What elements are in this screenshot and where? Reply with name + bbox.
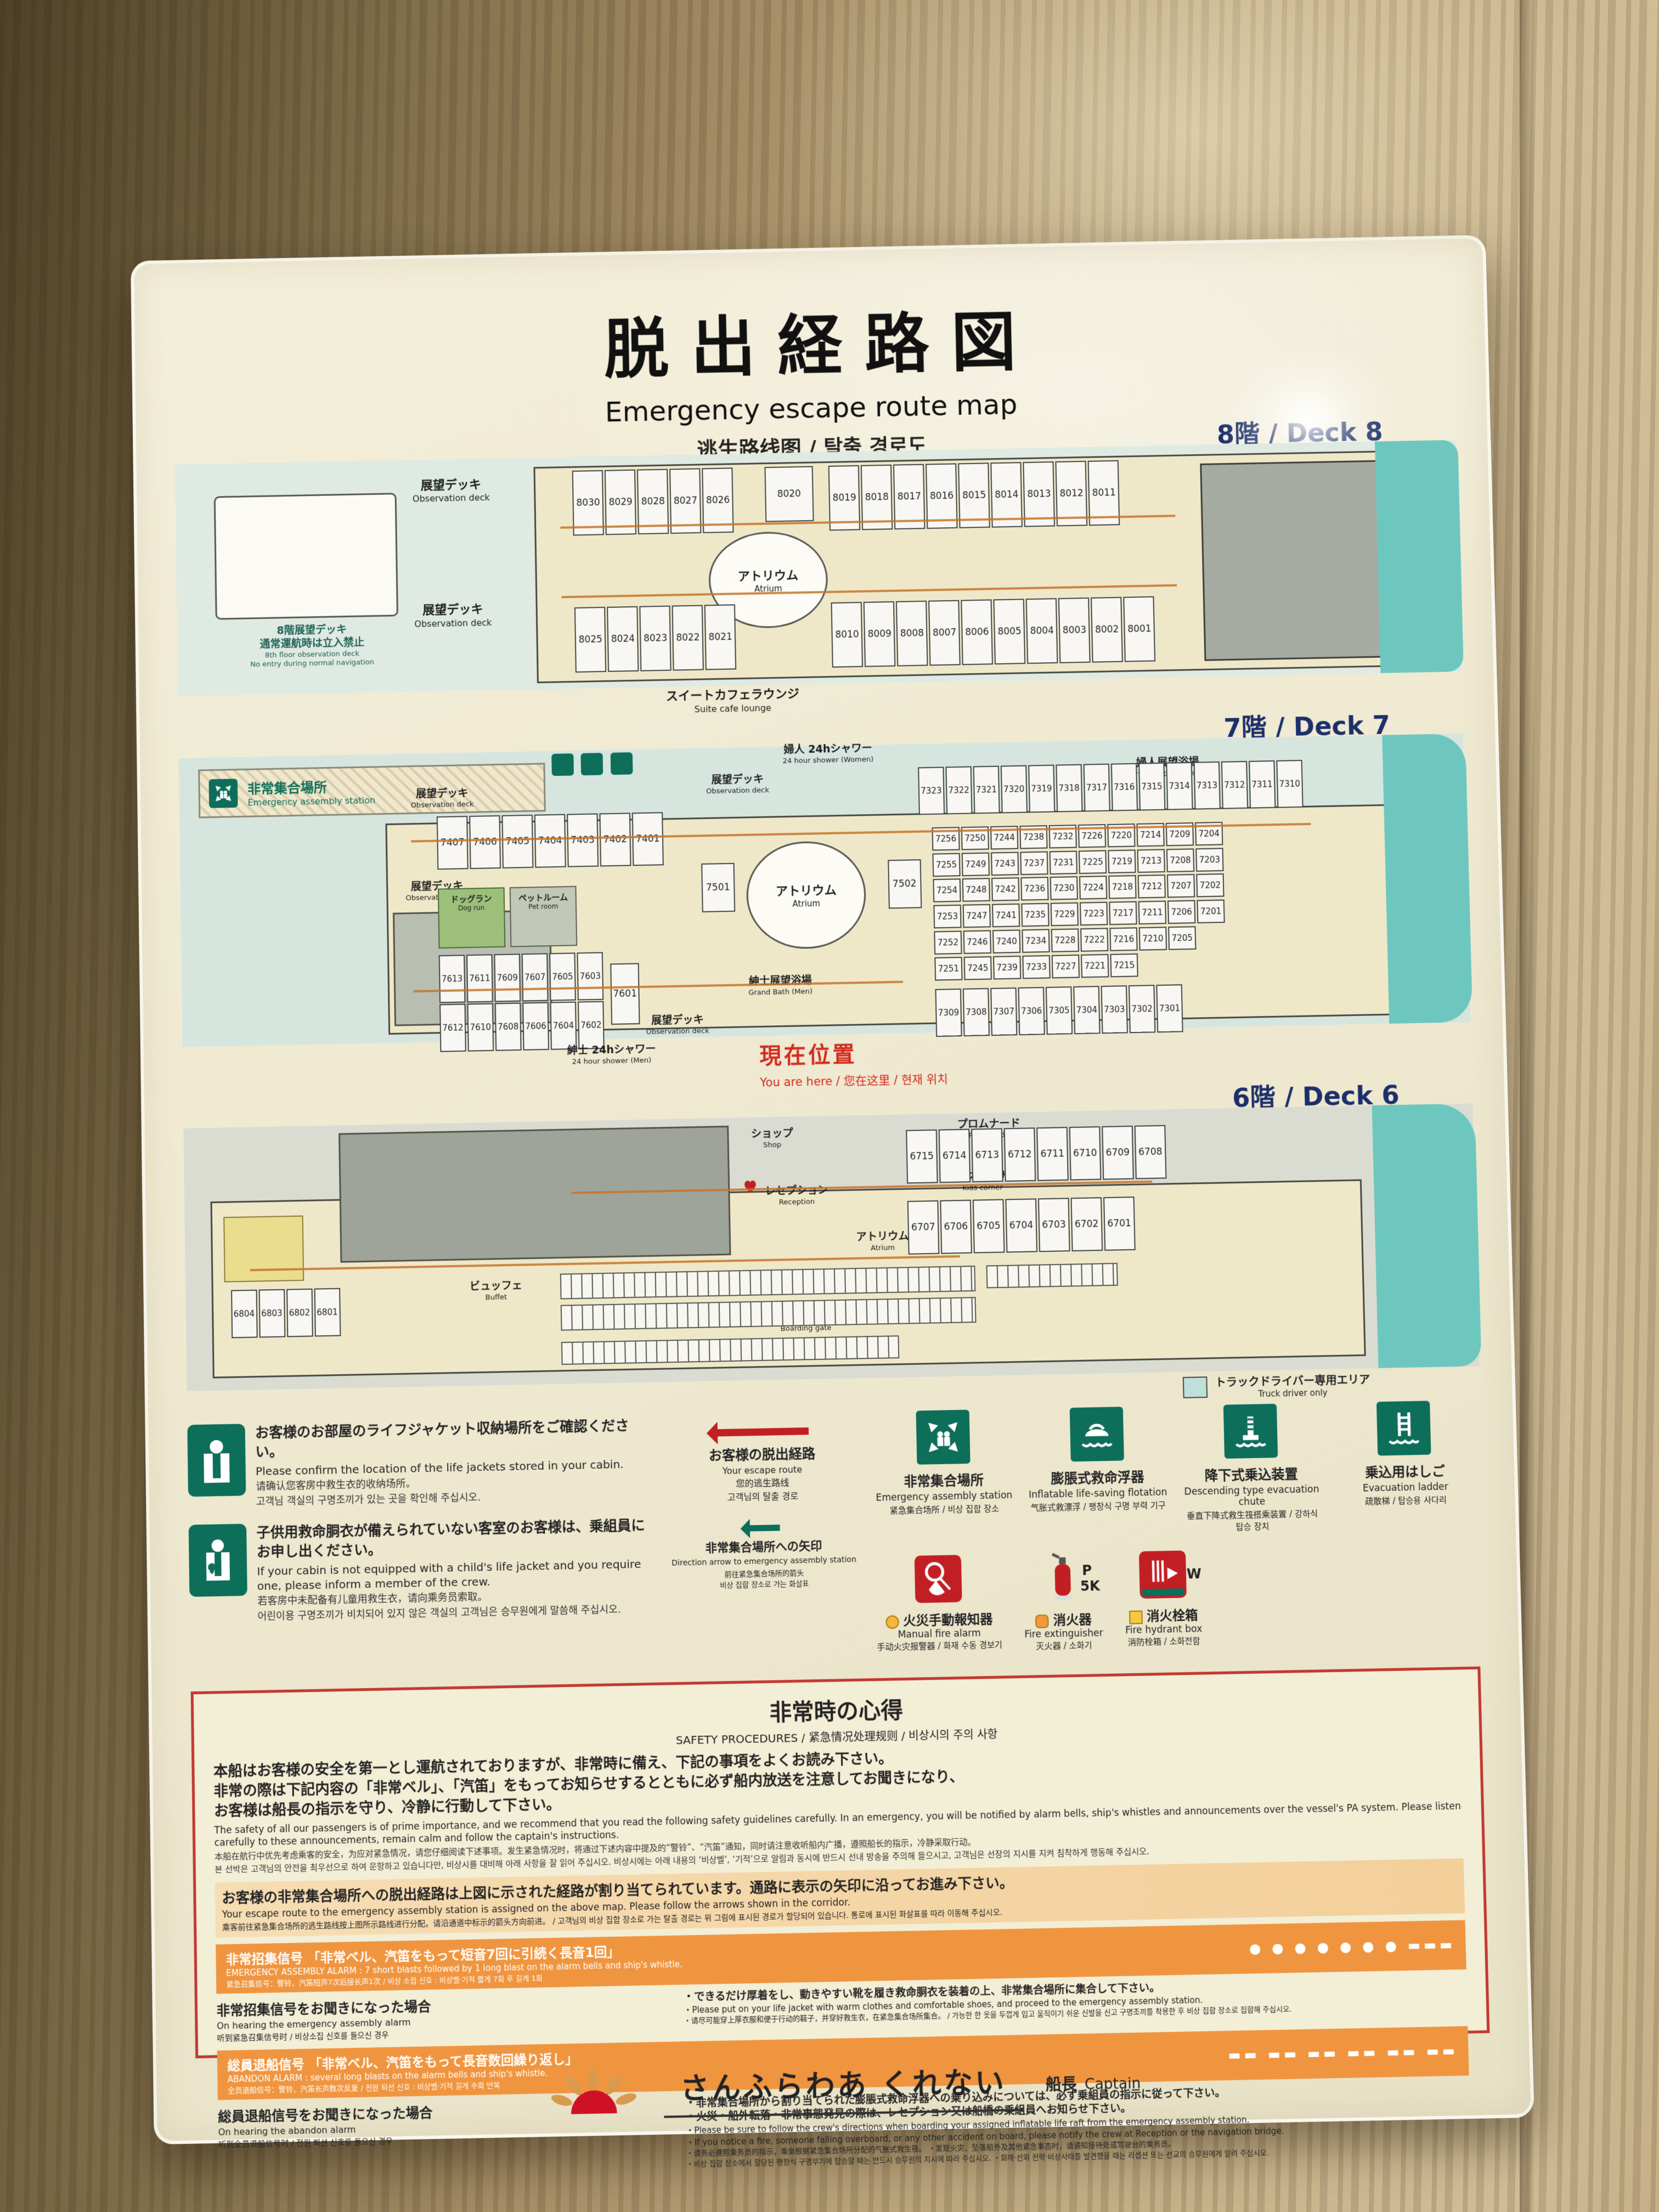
- deck6-superstructure: [338, 1126, 731, 1263]
- cabin: 7241: [992, 904, 1020, 927]
- cabin: 7305: [1046, 986, 1073, 1035]
- cabin: 7307: [990, 988, 1017, 1036]
- deck7-pet-room: ペットルーム Pet room: [510, 886, 577, 947]
- manual-fire-alarm-icon: [915, 1555, 962, 1603]
- deck8-cabin-row-bottom-right: 8010800980088007800680058004800380028001: [831, 596, 1156, 668]
- cabin: 7255: [933, 853, 961, 876]
- cabin: 7323: [918, 766, 945, 815]
- cabin: 7201: [1197, 900, 1224, 923]
- deck7-grid-row-6: 7251724572397233722772217215: [934, 953, 1138, 981]
- cabin: 7303: [1101, 985, 1128, 1034]
- cabin: 7401: [632, 812, 664, 866]
- cabin: 7215: [1110, 953, 1138, 978]
- hydrant-map-marker-icon: [1129, 1610, 1143, 1624]
- cabin: 7321: [973, 765, 1000, 814]
- cabin: 7304: [1073, 986, 1100, 1034]
- cabin: 6707: [907, 1200, 940, 1255]
- cabin: 7318: [1056, 764, 1082, 812]
- legend-ladder-item: 乗込用はしご Evacuation ladder 疏散梯 / 탑승용 사다리: [1333, 1400, 1477, 1531]
- cabin: 7225: [1079, 850, 1107, 873]
- alarm-map-marker-icon: [885, 1615, 899, 1629]
- cabin: 7609: [494, 953, 521, 1002]
- cabin: 8004: [1026, 598, 1058, 664]
- deck8-restricted-note: 8階展望デッキ 通常運航時は立入禁止 8th floor observation…: [190, 622, 435, 670]
- cabin: 7317: [1083, 763, 1110, 811]
- evacuation-ladder-icon: [551, 753, 574, 776]
- cabin: 7311: [1249, 760, 1276, 809]
- cabin: 7248: [962, 878, 990, 902]
- emergency-assembly-icon: [208, 778, 238, 808]
- deck7-observation-deck-label-2: 展望デッキ Observation deck: [706, 773, 770, 797]
- cabin: 7605: [549, 952, 576, 1001]
- cabin: 7405: [502, 815, 534, 868]
- escape-route-arrow-icon: [714, 1427, 809, 1437]
- cabin: 7302: [1128, 985, 1155, 1033]
- cabin: 6706: [940, 1200, 972, 1254]
- on-hearing-assembly-alarm: 非常招集信号をお聞きになった場合 On hearing the emergenc…: [217, 1990, 668, 2044]
- cabin: 7223: [1080, 902, 1108, 926]
- cabin: 7207: [1167, 874, 1195, 898]
- deck7-left-grid-row-1: 761376117609760776057603: [439, 952, 604, 1003]
- evacuation-chute-icon: [1223, 1404, 1277, 1459]
- aed-heart-icon: [742, 1178, 759, 1195]
- deck6-left-small-cabins: 6804680368026801: [231, 1288, 341, 1339]
- evacuation-ladder-icon: [1376, 1401, 1431, 1455]
- deck7-observation-deck-label-4: 展望デッキ Observation deck: [646, 1014, 709, 1037]
- extinguisher-map-marker-icon: [1035, 1614, 1049, 1628]
- cabin: 7404: [534, 814, 566, 868]
- cabin: 7237: [1020, 851, 1048, 874]
- captain-label: 船長Captain: [1045, 2070, 1141, 2095]
- pet-room-label: ペットルーム Pet room: [511, 892, 575, 912]
- cabin: 6701: [1103, 1197, 1136, 1251]
- cabin: 7221: [1081, 954, 1109, 978]
- cabin: 7313: [1193, 761, 1220, 810]
- cabin: 7306: [1018, 987, 1045, 1035]
- deck8-suite-cafe-label: スイートカフェラウンジ Suite cafe lounge: [666, 687, 800, 716]
- cabin: 8001: [1124, 596, 1156, 662]
- cabin: 7218: [1108, 875, 1136, 899]
- cabin: 7308: [963, 988, 990, 1036]
- cabin: 6713: [971, 1128, 1003, 1183]
- cabin: 6703: [1038, 1198, 1070, 1252]
- cabin: 7208: [1166, 848, 1194, 872]
- assembly-alarm-signal: ● ● ● ● ● ● ● ▬▬▬: [1249, 1937, 1456, 1956]
- deck6-yellow-rooms: [223, 1215, 304, 1282]
- fire-extinguisher-icon: P 5K: [1047, 1553, 1078, 1605]
- assembly-alarm-instructions: ・できるだけ厚着をし、動きやすい靴を履き救命胴衣を装着の上、非常集合場所に集合し…: [683, 1975, 1468, 2035]
- cabin: 6705: [973, 1199, 1005, 1254]
- cabin: 7227: [1052, 955, 1080, 979]
- cabin-7501: 7501: [701, 863, 735, 912]
- deck6-sea: [1372, 1103, 1481, 1368]
- cabin: 7222: [1080, 928, 1108, 952]
- cabin: 6708: [1135, 1125, 1167, 1180]
- cabin: 7407: [437, 816, 469, 870]
- deck7-observation-deck-label-1: 展望デッキ Observation deck: [410, 787, 473, 811]
- legend-assembly-item: 非常集合場所 Emergency assembly station 紧急集合场所…: [872, 1409, 1015, 1539]
- cabin: 6712: [1004, 1127, 1036, 1182]
- assembly-direction-arrow-icon: [747, 1525, 780, 1531]
- cabin: 7239: [993, 956, 1021, 980]
- cabin: 7309: [935, 989, 962, 1037]
- deck8-observation-structure: [214, 493, 398, 620]
- deck6-atrium-label: アトリウム Atrium: [856, 1230, 910, 1254]
- deck8-sea: [1375, 440, 1464, 673]
- child-life-jacket-icon: [189, 1524, 247, 1597]
- cabin: 7253: [933, 905, 961, 928]
- fire-hydrant-box-icon: W: [1138, 1550, 1186, 1601]
- cabin: 7233: [1022, 955, 1050, 979]
- deck6-cabin-row-top: 67156714671367126711671067096708: [906, 1125, 1166, 1184]
- cabin: 7315: [1138, 762, 1165, 810]
- cabin: 7230: [1050, 877, 1078, 900]
- safety-procedures-box: 非常時の心得 SAFETY PROCEDURES / 紧急情况处理规则 / 비상…: [191, 1667, 1490, 2058]
- cabin: 6802: [286, 1289, 313, 1338]
- cabin: 6710: [1069, 1126, 1102, 1181]
- cabin: 7246: [963, 930, 991, 954]
- deck7-dog-run: ドッグラン Dog run: [438, 888, 505, 949]
- cabin: 7406: [469, 815, 501, 869]
- cabin: 7251: [934, 957, 962, 981]
- cabin-7502: 7502: [888, 859, 922, 909]
- cabin: 7213: [1137, 849, 1165, 872]
- legend-lifejacket-column: お客様のお部屋のライフジャケット収納場所をご確認ください。 Please con…: [187, 1416, 654, 1679]
- cabin: 7249: [962, 852, 990, 876]
- cabin: 7611: [466, 954, 493, 1002]
- cabin: 7607: [522, 953, 549, 1001]
- legend-chute-item: 降下式乗込装置 Descending type evacuation chute…: [1180, 1403, 1323, 1533]
- cabin: 8003: [1058, 597, 1091, 663]
- cabin: 7224: [1079, 876, 1107, 900]
- ship-name: さんふらわあ くれない: [663, 2058, 1024, 2118]
- cabin: 7206: [1167, 900, 1195, 924]
- cabin: 8024: [607, 606, 639, 672]
- deck7-plan: 非常集合場所 Emergency assembly station 展望デッキ …: [179, 733, 1471, 1047]
- cabin: 7202: [1196, 873, 1224, 897]
- deck7-assembly-text: 非常集合場所 Emergency assembly station: [247, 776, 375, 808]
- cabin: 7212: [1138, 874, 1166, 898]
- cabin: 7210: [1139, 927, 1167, 951]
- cabin: 8007: [928, 600, 961, 666]
- cabin: 7231: [1049, 850, 1077, 874]
- escape-route-sign: 脱出経路図 Emergency escape route map 逃生路线图 /…: [131, 235, 1534, 2145]
- cabin: 7236: [1020, 877, 1048, 901]
- cabin: 8006: [961, 599, 994, 665]
- deck8-plan: 8階展望デッキ 通常運航時は立入禁止 8th floor observation…: [175, 440, 1462, 696]
- legend-section: お客様のお部屋のライフジャケット収納場所をご確認ください。 Please con…: [187, 1400, 1480, 1679]
- deck6-cabin-row-second: 6707670667056704670367026701: [907, 1197, 1136, 1255]
- cabin: 7205: [1168, 926, 1196, 950]
- cabin: 7254: [933, 879, 961, 902]
- deck6-plan: 6804680368026801 ショップ Shop プロムナード Promen…: [183, 1103, 1479, 1391]
- cabin: 7245: [964, 956, 992, 980]
- truck-area-swatch-icon: [1183, 1376, 1207, 1398]
- deck7-shower-women-label: 婦人 24hシャワー 24 hour shower (Women): [782, 742, 873, 766]
- cabin: 7247: [963, 904, 991, 928]
- legend-raft-item: 膨脹式救命浮器 Inflatable life-saving flotation…: [1026, 1406, 1169, 1537]
- cabin: 7240: [992, 929, 1020, 953]
- cabin: 7403: [567, 814, 599, 867]
- cabin: 7314: [1166, 762, 1193, 810]
- deck7-assembly-station-box: 非常集合場所 Emergency assembly station: [198, 763, 546, 818]
- wood-wall: 脱出経路図 Emergency escape route map 逃生路线图 /…: [0, 0, 1659, 2212]
- cabin: 7228: [1051, 928, 1079, 952]
- cabin: 7316: [1111, 763, 1138, 811]
- dog-run-label: ドッグラン Dog run: [439, 893, 504, 913]
- cabin-8020: 8020: [764, 466, 814, 522]
- cabin: 7211: [1138, 901, 1166, 924]
- cabin: 8005: [994, 599, 1026, 664]
- cabin: 7243: [991, 851, 1019, 875]
- deck7-sea: [1382, 733, 1473, 1024]
- cabin: 6702: [1070, 1197, 1103, 1251]
- truck-driver-note: トラックドライバー専用エリア Truck driver only: [1183, 1370, 1370, 1401]
- you-are-here-marker: 現在位置 You are here / 您在这里 / 현재 위치: [759, 1034, 948, 1090]
- cabin: 7216: [1110, 927, 1138, 951]
- deck7-shower-men-label: 紳士 24hシャワー 24 hour shower (Men): [567, 1043, 657, 1067]
- cabin: 7229: [1051, 902, 1079, 926]
- deck8-funnel-area: [1200, 460, 1400, 662]
- deck6-buffet-label: ビュッフェ Buffet: [470, 1279, 523, 1303]
- emergency-assembly-icon: [916, 1410, 970, 1465]
- cabin: 6801: [314, 1288, 341, 1337]
- deck6-shop-label: ショップ Shop: [751, 1127, 793, 1150]
- cabin: 7320: [1001, 765, 1028, 813]
- cabin: 7613: [439, 955, 466, 1003]
- cabin: 7235: [1021, 903, 1049, 927]
- cabin: 7242: [991, 878, 1019, 901]
- legend-route-column: お客様の脱出経路 Your escape route 您的逃生路线 고객님의 탈…: [665, 1412, 863, 1670]
- legend-symbols-column: 非常集合場所 Emergency assembly station 紧急集合场所…: [872, 1400, 1480, 1666]
- deck8-observation-deck-bottom-label: 展望デッキ Observation deck: [414, 602, 492, 630]
- deck8-observation-deck-top-label: 展望デッキ Observation deck: [412, 477, 490, 504]
- deck8-cabin-row-bottom-left: 80258024802380228021: [574, 604, 736, 672]
- cabin: 7402: [599, 813, 631, 867]
- cabin: 6704: [1005, 1199, 1037, 1253]
- cabin: 7319: [1028, 764, 1055, 812]
- cabin: 6803: [258, 1289, 285, 1338]
- cabin: 7234: [1022, 929, 1049, 953]
- sunflower-sun-logo-icon: [546, 2064, 642, 2121]
- legend-extinguisher-item: P 5K 消火器 Fire extinguisher 灭火器 / 소화기: [1023, 1552, 1103, 1652]
- cabin: 8021: [704, 604, 736, 670]
- deck7-cabin-row-7300-top: 7323732273217320731973187317731673157314…: [918, 760, 1304, 815]
- deck6-small-cabin-strip: [986, 1262, 1118, 1288]
- cabin: 8002: [1091, 597, 1123, 663]
- cabin: 8022: [672, 605, 704, 671]
- cabin: 7217: [1109, 901, 1137, 925]
- legend-manual-alarm-item: 火災手動報知器 Manual fire alarm 手动火灾报警器 / 화재 수…: [875, 1554, 1002, 1653]
- cabin: 8009: [864, 601, 896, 667]
- cabin: 7219: [1108, 849, 1136, 873]
- cabin: 7203: [1195, 848, 1223, 871]
- cabin: 8023: [640, 606, 672, 672]
- cabin: 7252: [934, 930, 962, 955]
- legend-hydrant-item: W 消火栓箱 Fire hydrant box 消防栓箱 / 소화전함: [1124, 1550, 1203, 1648]
- cabin: 8025: [574, 607, 606, 673]
- cabin: 7322: [945, 766, 972, 814]
- cabin: 7310: [1276, 760, 1303, 808]
- cabin: 6714: [939, 1129, 970, 1183]
- cabin-7601: 7601: [610, 963, 640, 1025]
- cabin: 7312: [1221, 761, 1248, 809]
- cabin: 6709: [1102, 1126, 1134, 1180]
- cabin: 7301: [1156, 984, 1183, 1032]
- life-raft-icon: [611, 752, 633, 775]
- legend-child-lifejacket-note: 子供用救命胴衣が備えられていない客室のお客様は、乗組員にお申し出ください。 If…: [189, 1516, 654, 1625]
- cabin: 7603: [577, 952, 603, 1000]
- life-raft-icon: [1069, 1407, 1124, 1462]
- cabin: 6711: [1036, 1127, 1069, 1181]
- cabin: 6715: [906, 1130, 938, 1184]
- cabin: 8010: [831, 602, 864, 668]
- evacuation-chute-icon: [581, 753, 603, 775]
- cabin: 6804: [231, 1290, 258, 1339]
- life-jacket-icon: [187, 1424, 246, 1497]
- cabin: 8008: [896, 601, 928, 667]
- legend-lifejacket-note: お客様のお部屋のライフジャケット収納場所をご確認ください。 Please con…: [187, 1416, 652, 1510]
